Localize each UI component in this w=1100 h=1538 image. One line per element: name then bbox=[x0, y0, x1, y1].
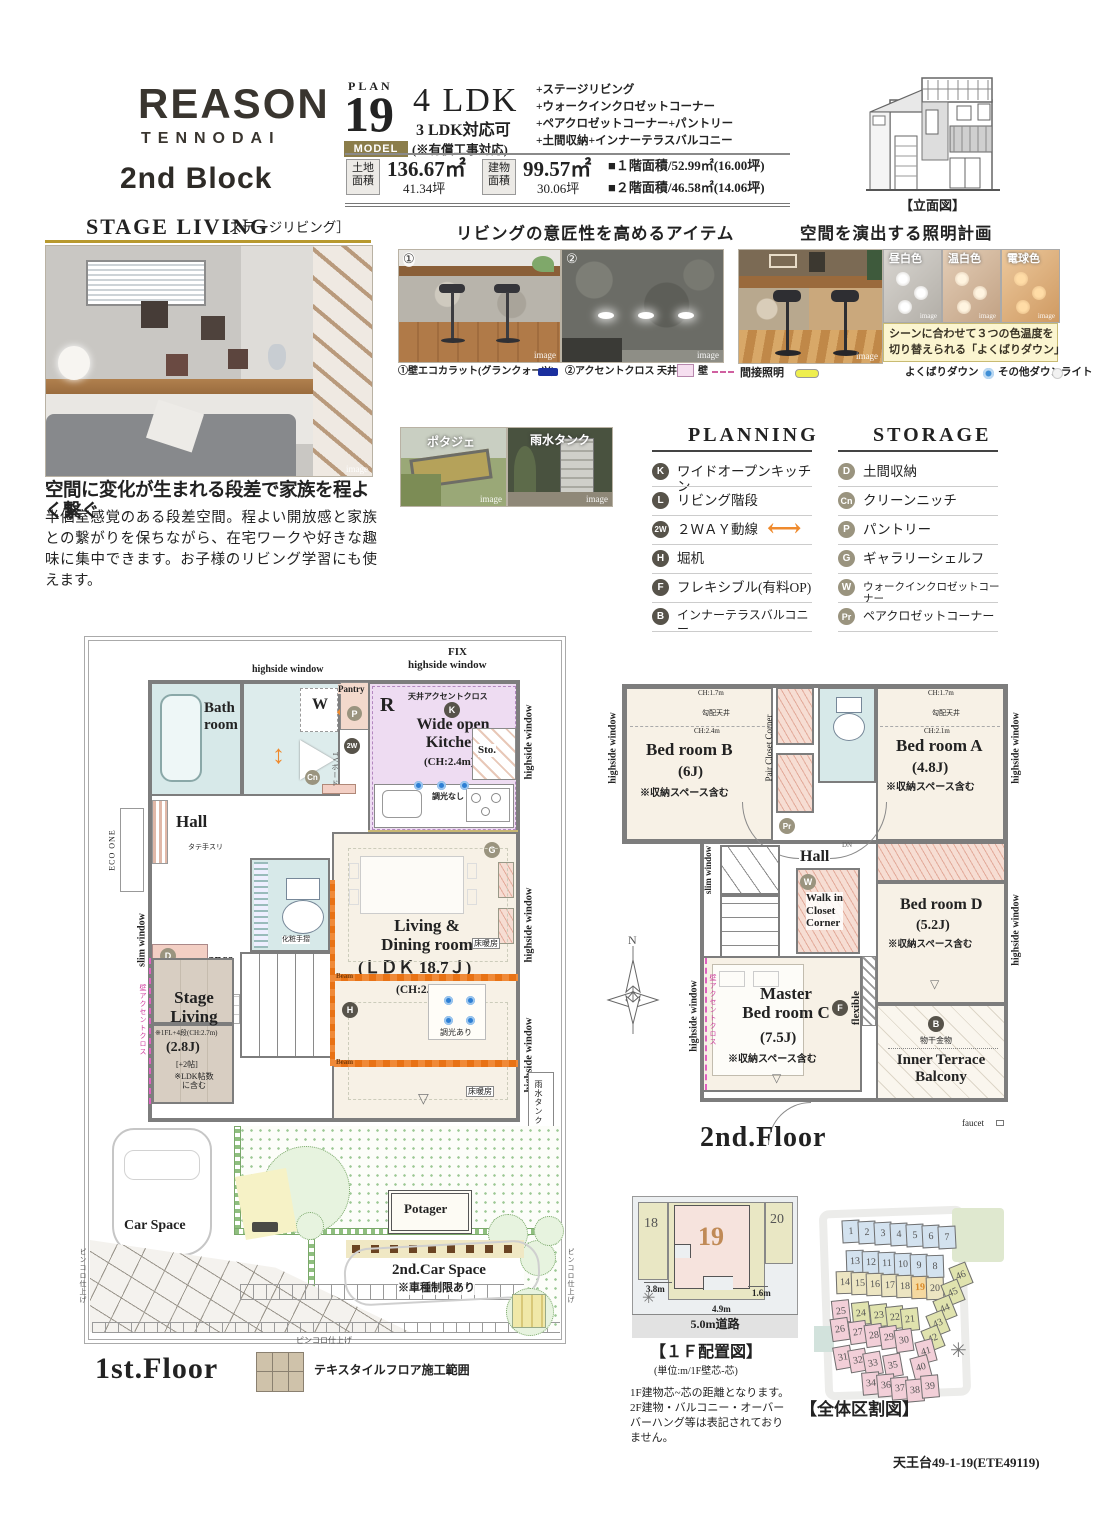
f1-tree-small bbox=[296, 1212, 324, 1240]
layout1f-dim-49: 4.9m bbox=[712, 1304, 731, 1314]
f1-beam-vertical bbox=[330, 880, 335, 1066]
footer-code: 天王台49-1-19(ETE49119) bbox=[893, 1456, 1040, 1471]
f1-beam-band-1 bbox=[334, 974, 518, 981]
potager-image-tag: image bbox=[480, 494, 502, 504]
storage-item-label: ペアクロゼットコーナー bbox=[863, 610, 994, 624]
f1-slit-wall bbox=[152, 800, 168, 864]
map-lot: 30 bbox=[893, 1328, 914, 1353]
f2-beda-ch21: CH:2.1m bbox=[924, 728, 950, 736]
items-legend-1: ①壁エコカラット(グランクォーツ) bbox=[398, 366, 554, 377]
f1-hall-label: Hall bbox=[176, 812, 207, 831]
f1-badge-2w: 2W bbox=[344, 738, 360, 754]
f2-bedb-label: Bed room B bbox=[646, 740, 733, 759]
f2-stairs-run bbox=[720, 895, 780, 961]
page: REASON TENNODAI 2nd Block PLAN 19 MODEL … bbox=[0, 0, 1100, 1538]
f1-ceiling-accent-label: 天井アクセントクロス bbox=[408, 692, 488, 701]
land-area-label: 土地 面積 bbox=[346, 159, 380, 195]
f1-bathroom-label: Bath room bbox=[204, 700, 238, 734]
f2-bedd-label: Bed room D bbox=[900, 896, 982, 914]
f1-textile-swatch bbox=[256, 1352, 304, 1392]
f1-highside-top-left: highside window bbox=[252, 664, 323, 675]
layout1f-lot20-label: 20 bbox=[770, 1212, 784, 1228]
f1-beam-band-2 bbox=[334, 1060, 518, 1067]
storage-item-label: ギャラリーシェルフ bbox=[863, 551, 984, 566]
planning-list: K ワイドオープンキッチン L リビング階段 2W ２ＷＡＹ動線 ⟷ H 堀机 … bbox=[652, 460, 814, 634]
f2-master-triangle: ▽ bbox=[772, 1072, 781, 1086]
f2-bedd-note: ※収納スペース含む bbox=[888, 940, 972, 951]
floor1-area: ■１階面積/52.99㎡(16.00坪) bbox=[608, 159, 765, 174]
ldk-alt: 3 LDK対応可 bbox=[416, 122, 511, 140]
feature-1: +ステージリビング bbox=[536, 84, 634, 97]
swatch-warmwhite-label: 温白色 bbox=[948, 253, 981, 266]
f1-car1 bbox=[112, 1128, 212, 1256]
f1-ecoone-label: ECO ONE bbox=[108, 829, 117, 870]
items-photo2-image-tag: image bbox=[697, 350, 719, 360]
f1-downlight-dot bbox=[444, 1016, 453, 1025]
badge-pr: Pr bbox=[838, 608, 855, 625]
f2-hall-label: Hall bbox=[800, 848, 829, 866]
swatch-daylight-label: 昼白色 bbox=[889, 253, 922, 266]
badge-h: H bbox=[652, 550, 669, 567]
f1-pincoro-left: ピンコロ仕上げ bbox=[78, 1248, 88, 1304]
layout1f-dimline-1 bbox=[644, 1282, 672, 1283]
f1-badge-h: H bbox=[342, 1002, 358, 1018]
accent-ceiling-swatch bbox=[677, 364, 694, 377]
f2-bedb-note: ※収納スペース含む bbox=[640, 788, 729, 799]
f1-downlight-dot bbox=[414, 781, 423, 790]
compass-icon: N bbox=[598, 930, 668, 1040]
f2-slim-window-label: slim window bbox=[703, 846, 713, 894]
f2-pair-closet-upper bbox=[776, 687, 814, 745]
lighting-image-tag: image bbox=[856, 351, 878, 361]
layout1f-road-label: 5.0m道路 bbox=[632, 1318, 798, 1332]
f1-highside-top-center: highside window bbox=[408, 659, 487, 672]
badge-cn: Cn bbox=[838, 492, 855, 509]
f1-tree-small bbox=[534, 1216, 564, 1246]
building-area-m2: 99.57㎡ bbox=[523, 158, 591, 182]
brand-sub: TENNODAI bbox=[141, 130, 281, 148]
f1-highside-right-1: highside window bbox=[524, 705, 535, 780]
f2-beda-label: Bed room A bbox=[896, 736, 983, 755]
planning-item-label: 堀机 bbox=[677, 551, 704, 566]
f1-down-triangle: ▽ bbox=[418, 1092, 429, 1108]
rain-tank-photo: 雨水タンク image bbox=[507, 427, 613, 507]
map-compass: ✳ bbox=[950, 1340, 967, 1363]
header-rule-top bbox=[345, 153, 790, 155]
planning-item-flexible: F フレキシブル(有料OP) bbox=[652, 576, 814, 605]
storage-item-gallery: G ギャラリーシェルフ bbox=[838, 547, 1000, 576]
badge-w: W bbox=[838, 579, 855, 596]
map-lot: 39 bbox=[920, 1374, 940, 1398]
swatch-bulb-image-tag: image bbox=[1038, 312, 1055, 320]
lighting-note-line2: 切り替えられる「よくばりダウン」 bbox=[889, 344, 1065, 357]
f1-car2-label: 2nd.Car Space bbox=[392, 1262, 486, 1279]
f2-floor-title: 2nd.Floor bbox=[700, 1122, 826, 1154]
badge-f: F bbox=[652, 579, 669, 596]
planning-item-label: フレキシブル(有料OP) bbox=[677, 580, 811, 595]
rain-tank-photo-label: 雨水タンク bbox=[530, 434, 590, 448]
f2-bedd-triangle: ▽ bbox=[930, 978, 939, 992]
f1-floorheat-zone-1 bbox=[348, 848, 508, 962]
f1-beam-label-1: Beam bbox=[336, 973, 353, 981]
compass-n: N bbox=[628, 933, 637, 947]
storage-item-pantry: P パントリー bbox=[838, 518, 1000, 547]
stage-living-photo: image bbox=[45, 245, 373, 477]
stage-body: 半個室感覚のある段差空間。程よい開放感と家族との繋がりを保ちながら、在宅ワークや… bbox=[45, 508, 377, 592]
layout1f-note: 1F建物芯~芯の距離となります。 2F建物・バルコニー・オーバー バーハング等は… bbox=[630, 1386, 789, 1445]
stage-image-tag: image bbox=[346, 464, 368, 474]
badge-k: K bbox=[652, 463, 669, 480]
planning-item-desk: H 堀机 bbox=[652, 547, 814, 576]
swatch-daylight-image-tag: image bbox=[920, 312, 937, 320]
badge-l: L bbox=[652, 492, 669, 509]
f2-highside-left-master: highside window bbox=[689, 980, 700, 1051]
f1-stage-note1: ※1FL+4段(CH:2.7m) bbox=[155, 1030, 218, 1038]
accent-wall-dash bbox=[712, 371, 734, 373]
rain-tank-image-tag: image bbox=[586, 494, 608, 504]
header-rule-bottom bbox=[345, 203, 790, 207]
building-area-label: 建物 面積 bbox=[482, 159, 516, 195]
map-green-patch bbox=[952, 1208, 1004, 1262]
f1-car2-note: ※車種制限あり bbox=[398, 1282, 475, 1295]
swatch-daylight: 昼白色 image bbox=[883, 249, 942, 323]
f1-stage-note3: ※LDK帖数 に含む bbox=[158, 1072, 230, 1090]
f2-faucet-label: faucet bbox=[962, 1118, 984, 1128]
f1-floor-title: 1st.Floor bbox=[95, 1352, 218, 1386]
f1-stage-label: Stage Living bbox=[156, 988, 232, 1027]
elevation-caption: 【立面図】 bbox=[900, 199, 965, 214]
feature-3: +ペアクロゼットコーナー+パントリー bbox=[536, 118, 733, 131]
feature-4: +土間収納+インナーテラスバルコニー bbox=[536, 135, 733, 148]
layout1f-unit: (単位:m/1F壁芯-芯) bbox=[654, 1366, 738, 1377]
items-photo2-number: ② bbox=[566, 252, 578, 267]
f1-keshou-label: 化粧手摺 bbox=[282, 936, 310, 944]
block-label: 2nd Block bbox=[120, 162, 272, 196]
f2-pair-closet-label: Pair Closet Corner bbox=[764, 715, 774, 782]
f1-stage-size: (2.8J) bbox=[166, 1040, 200, 1056]
f1-downlight-dot bbox=[460, 781, 469, 790]
f2-faucet-mark bbox=[996, 1120, 1004, 1126]
f2-beda-size: (4.8J) bbox=[912, 760, 948, 777]
items-legend-2: ②アクセントクロス 天井 bbox=[565, 366, 677, 377]
legend-down-label: よくばりダウン bbox=[905, 367, 979, 379]
f1-badge-cn: Cn bbox=[305, 770, 320, 785]
f1-dim-on-label: 調光あり bbox=[440, 1028, 472, 1037]
storage-rule bbox=[838, 450, 998, 452]
layout1f-lot19-label: 19 bbox=[698, 1222, 724, 1252]
f1-potager-label: Potager bbox=[404, 1202, 447, 1217]
storage-item-label: パントリー bbox=[863, 522, 931, 537]
f1-car1-windshield bbox=[124, 1150, 200, 1180]
items-photo1-image-tag: image bbox=[534, 350, 556, 360]
land-area-tsubo: 41.34坪 bbox=[403, 182, 445, 197]
stage-gold-rule bbox=[45, 240, 371, 243]
storage-item-pair-closet: Pr ペアクロゼットコーナー bbox=[838, 605, 1000, 634]
f1-downlight-dot bbox=[437, 781, 446, 790]
layout1f-dim-16: 1.6m bbox=[752, 1288, 771, 1298]
swatch-warmwhite: 温白色 image bbox=[942, 249, 1001, 323]
f2-badge-f: F bbox=[832, 1000, 848, 1016]
legend-indirect-label: 間接照明 bbox=[740, 367, 784, 380]
other-dot bbox=[1052, 368, 1063, 379]
plan-number: 19 bbox=[344, 86, 394, 143]
f2-laundry-line bbox=[888, 1048, 998, 1049]
f1-rain-tank-label: 雨水タンク bbox=[533, 1080, 544, 1125]
layout1f-lot18 bbox=[638, 1202, 668, 1280]
f1-tv-board-label: TVボード bbox=[330, 752, 340, 787]
f2-highside-left-b: highside window bbox=[608, 712, 619, 783]
f1-tatetesuri-label: タテ手スリ bbox=[188, 844, 223, 852]
swatch-bulb-label: 電球色 bbox=[1007, 253, 1040, 266]
f2-bedd-size: (5.2J) bbox=[916, 918, 950, 934]
building-area-tsubo: 30.06坪 bbox=[537, 182, 579, 197]
f1-fix-label: FIX bbox=[448, 646, 467, 659]
storage-title: STORAGE bbox=[873, 424, 991, 447]
2way-arrow-icon: ⟷ bbox=[767, 516, 801, 543]
planning-rule bbox=[652, 450, 812, 452]
f1-wall-accent-label: 壁アクセントクロス bbox=[138, 984, 148, 1056]
lighting-note-line1: シーンに合わせて３つの色温度を bbox=[889, 328, 1053, 341]
f1-stage-note2: [+2帖] bbox=[176, 1060, 198, 1069]
badge-b: B bbox=[652, 608, 669, 625]
layout1f-lot18-label: 18 bbox=[644, 1216, 658, 1232]
f2-balcony-label: Inner Terrace Balcony bbox=[880, 1052, 1002, 1086]
swatch-bulb: 電球色 image bbox=[1001, 249, 1060, 323]
f2-master-accent-line bbox=[705, 958, 707, 1090]
storage-item-label: クリーンニッチ bbox=[863, 493, 957, 508]
planning-item-balcony: B インナーテラスバルコニー bbox=[652, 605, 814, 634]
down-dot bbox=[983, 368, 994, 379]
elevation-drawing bbox=[862, 70, 1004, 196]
potager-photo-label: ポタジェ bbox=[427, 436, 475, 450]
f2-master-accent-label: 壁アクセントクロス bbox=[708, 974, 718, 1046]
f2-bedd-closet bbox=[876, 842, 1006, 882]
planning-item-kitchen: K ワイドオープンキッチン bbox=[652, 460, 814, 489]
planning-item-label: リビング階段 bbox=[677, 493, 758, 508]
items-legend-2-wall: 壁 bbox=[698, 366, 708, 377]
f1-car-space-label: Car Space bbox=[124, 1218, 186, 1234]
storage-item-cleanniche: Cn クリーンニッチ bbox=[838, 489, 1000, 518]
f1-downlight-dot bbox=[466, 996, 475, 1005]
f1-badge-p: P bbox=[347, 706, 362, 721]
feature-2: +ウォークインクロゼットコーナー bbox=[536, 101, 715, 114]
f1-downlight-dot bbox=[466, 1016, 475, 1025]
items-photo-2: ② image bbox=[561, 249, 724, 363]
planning-item-label: インナーテラスバルコニー bbox=[677, 609, 814, 636]
f1-downlight-dot bbox=[444, 996, 453, 1005]
map-lot: 7 bbox=[937, 1226, 956, 1250]
f2-laundry-label: 物干金物 bbox=[920, 1036, 952, 1045]
storage-list: D 土間収納 Cn クリーンニッチ P パントリー G ギャラリーシェルフ W … bbox=[838, 460, 1000, 634]
f1-pincoro-right: ピンコロ仕上げ bbox=[566, 1248, 576, 1304]
items-title: リビングの意匠性を高めるアイテム bbox=[456, 225, 734, 244]
f1-highside-right-2: highside window bbox=[524, 888, 535, 963]
f1-2way-arrow-vertical: ↕ bbox=[272, 740, 285, 770]
f2-bedb-slope: 勾配天井 bbox=[702, 710, 730, 718]
planning-item-label: ２ＷＡＹ動線 bbox=[677, 522, 758, 537]
f2-bedb-size: (6J) bbox=[678, 764, 703, 781]
badge-d: D bbox=[838, 463, 855, 480]
f2-flex-wall bbox=[862, 956, 876, 1026]
f2-highside-right-d: highside window bbox=[1011, 894, 1022, 965]
ecaratto-swatch bbox=[538, 368, 558, 376]
f1-pantry-label: Pantry bbox=[338, 684, 365, 694]
f2-beda-slope: 勾配天井 bbox=[932, 710, 960, 718]
brand-logo: REASON bbox=[138, 80, 330, 128]
badge-p: P bbox=[838, 521, 855, 538]
potager-photo: ポタジェ image bbox=[400, 427, 507, 507]
layout1f-dimline-2 bbox=[748, 1286, 768, 1287]
f2-badge-w: W bbox=[800, 874, 816, 890]
badge-2w: 2W bbox=[652, 521, 669, 538]
f1-wall-accent-line bbox=[149, 958, 151, 1104]
layout1f-caption: 【１Ｆ配置図】 bbox=[650, 1344, 762, 1362]
planning-item-2way: 2W ２ＷＡＹ動線 ⟷ bbox=[652, 518, 814, 547]
f1-bench bbox=[252, 1222, 278, 1232]
f1-ecoone-unit bbox=[120, 808, 144, 892]
f2-beda-note: ※収納スペース含む bbox=[886, 782, 975, 793]
legend-other-label: その他ダウンライト bbox=[998, 367, 1093, 379]
swatch-warmwhite-image-tag: image bbox=[979, 312, 996, 320]
f2-walkin-label: Walk in Closet Corner bbox=[806, 892, 843, 930]
f2-master-note: ※収納スペース含む bbox=[728, 1054, 817, 1065]
f2-beda-ch17: CH:1.7m bbox=[928, 690, 954, 698]
map-lot: 26 bbox=[829, 1317, 850, 1342]
f2-highside-right-a: highside window bbox=[1011, 712, 1022, 783]
f1-pincoro-bottom: ピンコロ仕上げ bbox=[296, 1336, 352, 1345]
f2-master-size: (7.5J) bbox=[760, 1030, 796, 1047]
lighting-title: 空間を演出する照明計画 bbox=[800, 225, 993, 244]
f2-badge-b: B bbox=[928, 1016, 944, 1032]
f2-toilet bbox=[818, 687, 876, 783]
map-caption: 【全体区割図】 bbox=[800, 1400, 919, 1419]
f1-r-label: R bbox=[380, 694, 394, 717]
f2-stairs-winder bbox=[720, 845, 780, 895]
f1-beam-label-2: Beam bbox=[336, 1059, 353, 1067]
f1-sto-label: Sto. bbox=[478, 744, 496, 757]
layout1f-compass: ✳ bbox=[642, 1290, 655, 1308]
f1-corner-planter bbox=[512, 1294, 546, 1328]
model-badge: MODEL bbox=[344, 141, 408, 157]
floor2-area: ■２階面積/46.58㎡(14.06坪) bbox=[608, 181, 765, 196]
storage-item-wic: W ウォークインクロゼットコーナー bbox=[838, 576, 1000, 605]
f1-sink bbox=[382, 790, 422, 818]
f1-kitchen-ch: (CH:2.4m) bbox=[424, 756, 474, 769]
f1-stairs bbox=[240, 952, 332, 1058]
storage-item-doma: D 土間収納 bbox=[838, 460, 1000, 489]
f2-bedb-ch17: CH:1.7m bbox=[698, 690, 724, 698]
f2-bedb-ch24: CH:2.4m bbox=[694, 728, 720, 736]
indirect-swatch bbox=[795, 369, 819, 378]
f1-paving-edge-bottom bbox=[92, 1322, 560, 1333]
planning-item-stairs: L リビング階段 bbox=[652, 489, 814, 518]
f1-stove bbox=[466, 788, 510, 822]
items-photo-1: ① image bbox=[398, 249, 561, 363]
badge-g: G bbox=[838, 550, 855, 567]
ldk-title: 4 LDK bbox=[413, 82, 518, 121]
planning-title: PLANNING bbox=[688, 424, 819, 447]
lighting-photo: image bbox=[738, 249, 883, 364]
ldk-alt-note: (※有償工事対応) bbox=[412, 143, 508, 157]
f2-flexible-label: flexible bbox=[850, 991, 862, 1025]
f1-washer-label: W bbox=[312, 696, 328, 714]
storage-item-label: 土間収納 bbox=[863, 464, 917, 479]
stage-title-jp: ［ステージリビング］ bbox=[215, 220, 350, 235]
items-photo1-number: ① bbox=[403, 252, 415, 267]
f1-dim-off-label: 調光なし bbox=[432, 792, 464, 801]
land-area-m2: 136.67㎡ bbox=[387, 158, 466, 182]
f1-textile-label: テキスタイルフロア施工範囲 bbox=[314, 1364, 470, 1378]
f1-slim-window-label: slim window bbox=[137, 913, 148, 967]
